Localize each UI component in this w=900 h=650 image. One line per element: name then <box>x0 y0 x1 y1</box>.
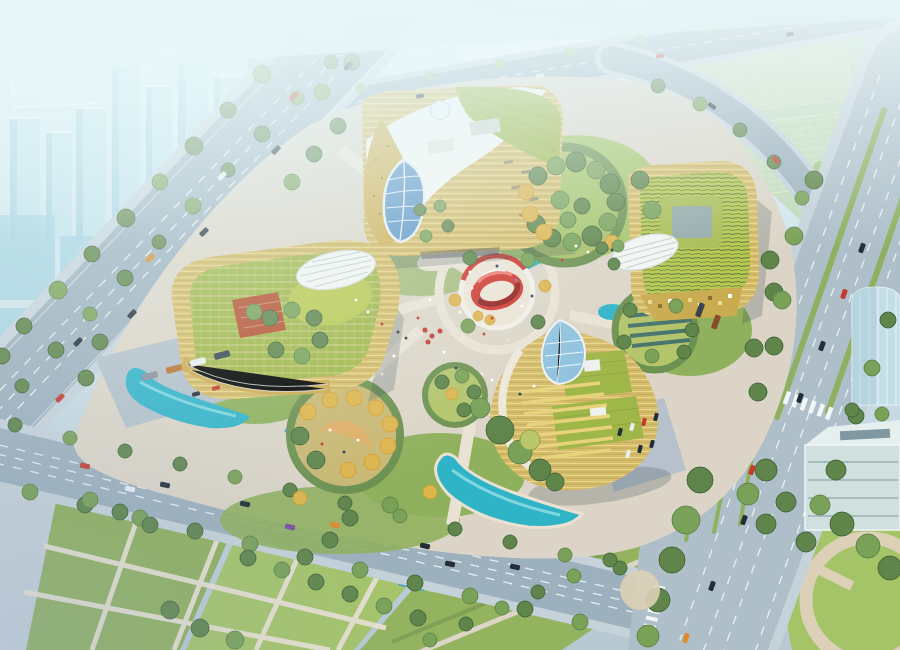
atmospheric-haze <box>0 0 900 650</box>
aerial-rendering-canvas <box>0 0 900 650</box>
masterplan-scene <box>0 0 900 650</box>
